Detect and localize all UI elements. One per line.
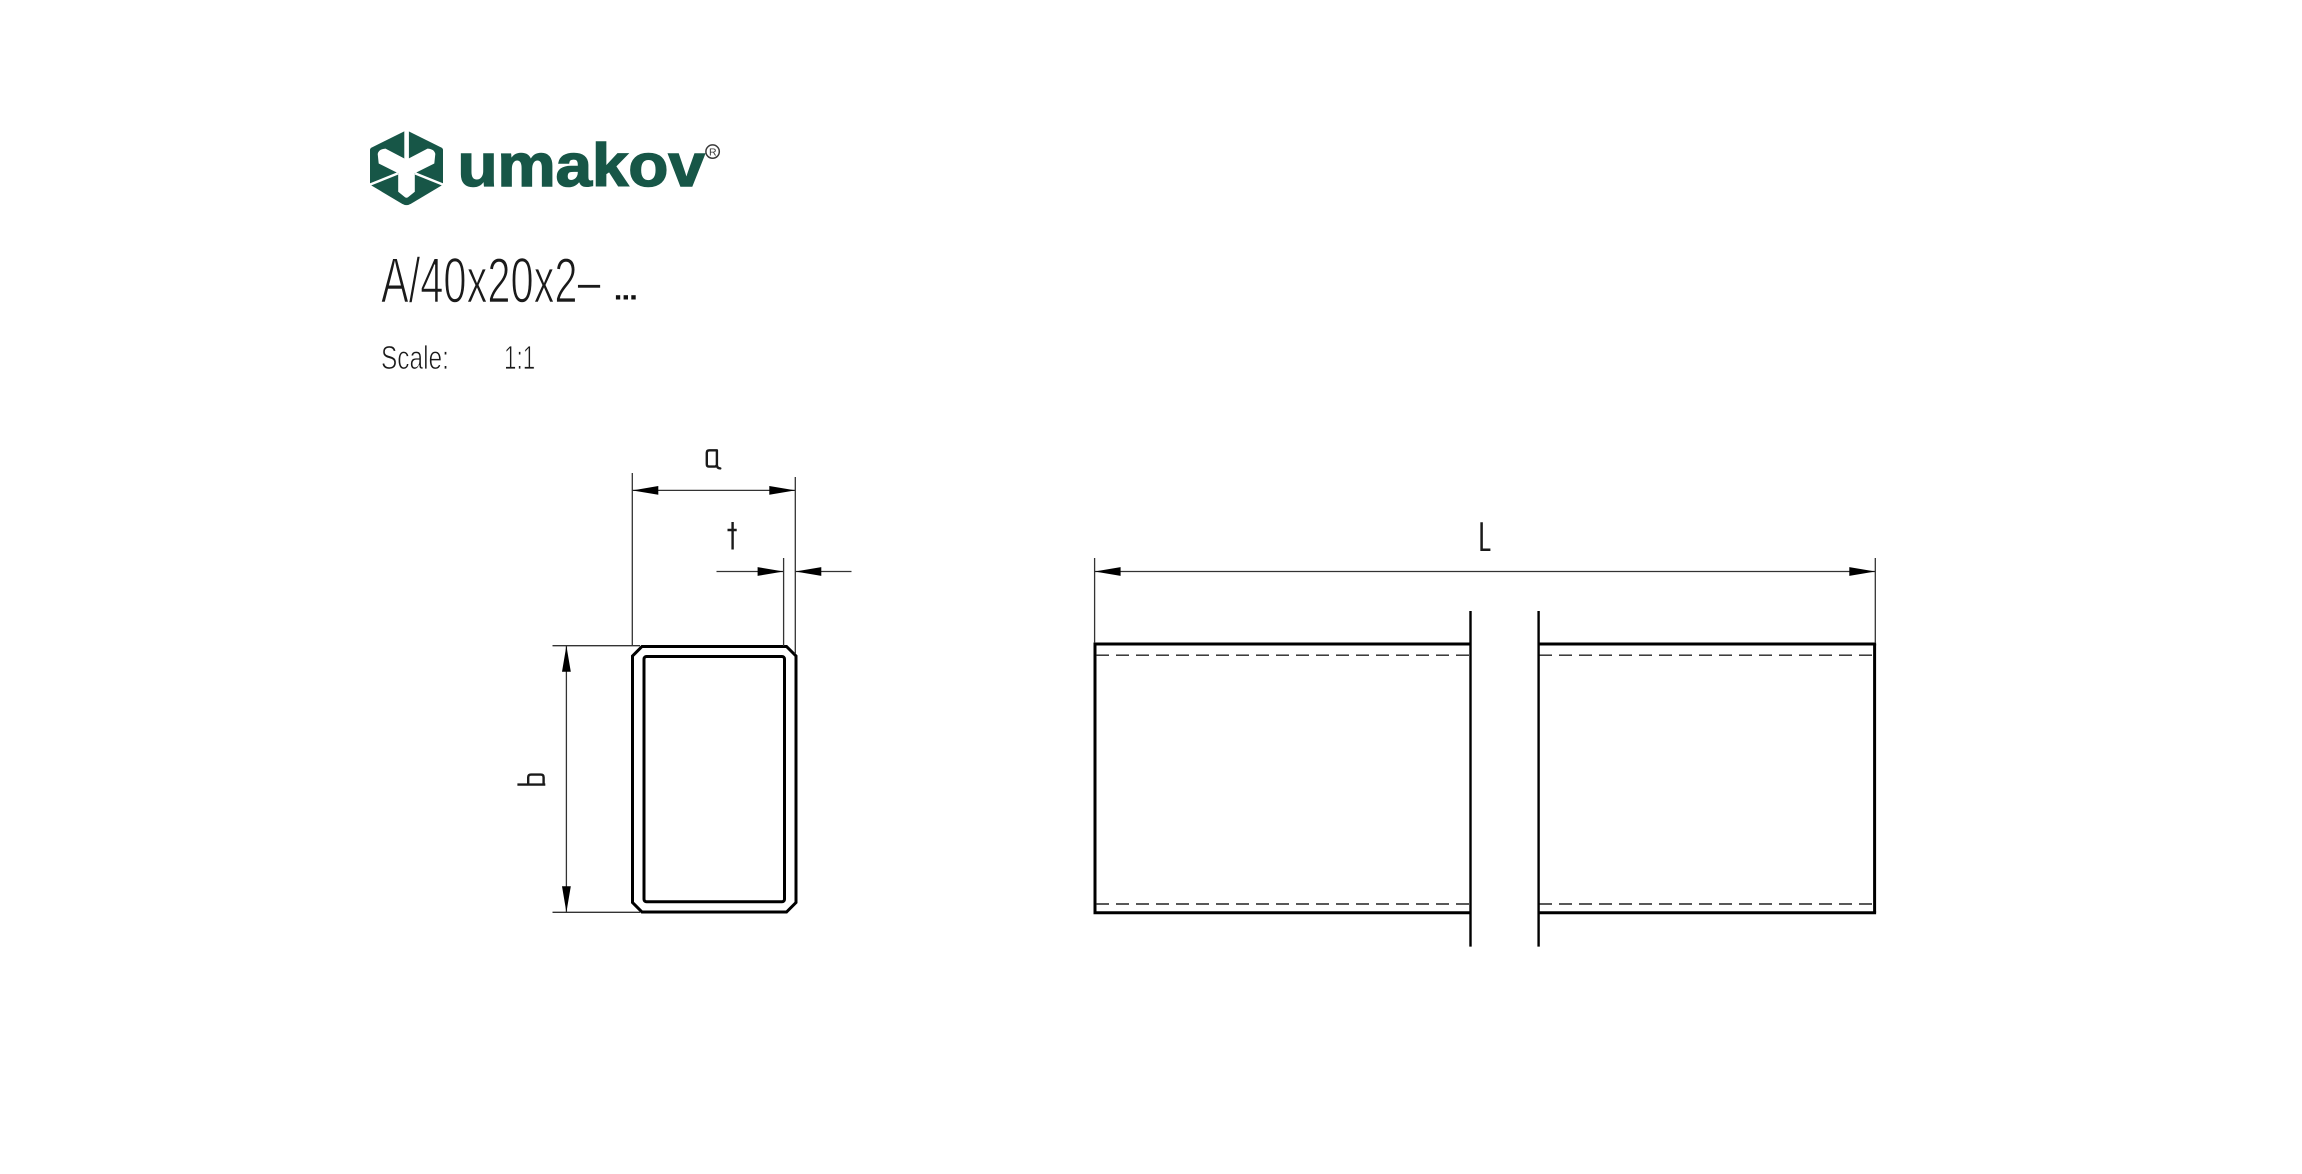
svg-text:Scale:: Scale:: [381, 340, 449, 378]
svg-text:A/40x20x2–: A/40x20x2–: [381, 246, 601, 317]
svg-text:umakov: umakov: [458, 132, 705, 199]
svg-text:1:1: 1:1: [504, 340, 535, 378]
svg-text:R: R: [709, 146, 717, 158]
